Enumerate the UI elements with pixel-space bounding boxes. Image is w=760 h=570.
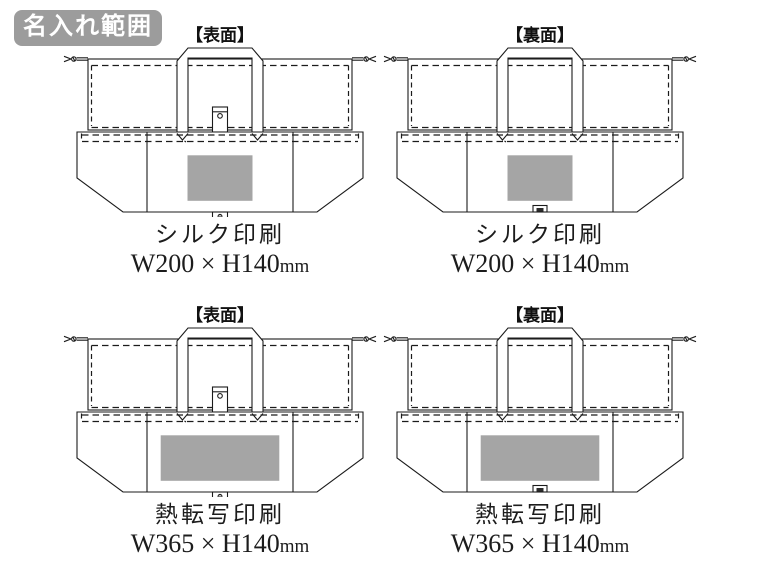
print-size-label: W200 × H140mm <box>451 250 630 281</box>
print-area <box>188 155 253 201</box>
size-unit: mm <box>280 536 310 557</box>
drawstring-left-icon <box>384 336 408 341</box>
upper-panel <box>408 339 672 410</box>
snap-button <box>213 387 228 412</box>
bag-slot <box>380 325 700 497</box>
bag-slot <box>380 45 700 217</box>
print-method-label: 熱転写印刷 <box>155 501 285 529</box>
print-area <box>508 155 573 201</box>
print-method-label: 熱転写印刷 <box>475 501 605 529</box>
size-value: W200 × H140 <box>451 249 600 278</box>
bag-diagram <box>60 45 380 217</box>
bag-diagram <box>380 45 700 217</box>
bag-diagram <box>60 325 380 497</box>
size-unit: mm <box>280 256 310 277</box>
drawstring-right-icon <box>352 56 376 61</box>
bottom-tab-back <box>533 486 547 493</box>
size-value: W365 × H140 <box>131 529 280 558</box>
side-label: 【裏面】 <box>506 307 574 325</box>
drawstring-right-icon <box>672 336 696 341</box>
diagram-cell-front-thermal: 【表面】 <box>60 307 380 561</box>
print-method-label: シルク印刷 <box>475 221 605 249</box>
print-size-label: W200 × H140mm <box>131 250 310 281</box>
size-value: W365 × H140 <box>451 529 600 558</box>
drawstring-right-icon <box>352 336 376 341</box>
diagram-cell-front-silk: 【表面】 <box>60 27 380 281</box>
bottom-tab-front <box>213 492 228 497</box>
size-unit: mm <box>600 536 630 557</box>
drawstring-right-icon <box>672 56 696 61</box>
imprint-area-diagram: 名入れ範囲 【表面】 <box>0 0 760 570</box>
snap-button <box>213 107 228 132</box>
bottom-tab-back <box>533 206 547 213</box>
diagram-cell-back-thermal: 【裏面】 <box>380 307 700 561</box>
print-area <box>481 435 600 481</box>
print-size-label: W365 × H140mm <box>131 530 310 561</box>
side-label: 【表面】 <box>186 307 254 325</box>
size-unit: mm <box>600 256 630 277</box>
drawstring-left-icon <box>384 56 408 61</box>
bottom-tab-front <box>213 212 228 217</box>
print-area <box>161 435 280 481</box>
upper-panel <box>408 59 672 130</box>
side-label: 【表面】 <box>186 27 254 45</box>
bag-slot <box>60 325 380 497</box>
side-label: 【裏面】 <box>506 27 574 45</box>
bag-diagram <box>380 325 700 497</box>
print-method-label: シルク印刷 <box>155 221 285 249</box>
bag-slot <box>60 45 380 217</box>
size-value: W200 × H140 <box>131 249 280 278</box>
print-size-label: W365 × H140mm <box>451 530 630 561</box>
drawstring-left-icon <box>64 336 88 341</box>
drawstring-left-icon <box>64 56 88 61</box>
diagram-cell-back-silk: 【裏面】 <box>380 27 700 281</box>
